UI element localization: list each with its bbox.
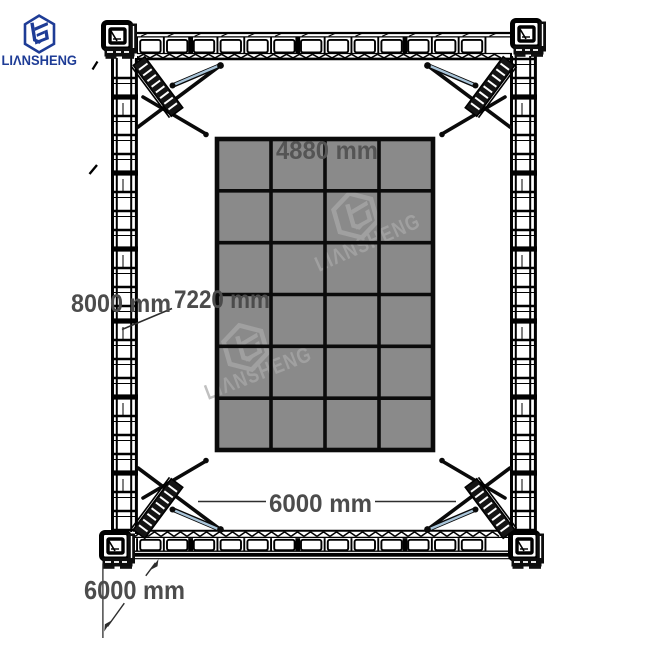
- svg-text:6000 mm: 6000 mm: [84, 575, 185, 605]
- svg-text:LIΛNSHENG: LIΛNSHENG: [2, 53, 78, 68]
- svg-text:6000 mm: 6000 mm: [269, 490, 372, 518]
- svg-text:4880 mm: 4880 mm: [276, 137, 378, 165]
- svg-text:8000 mm: 8000 mm: [71, 290, 171, 318]
- svg-text:7220 mm: 7220 mm: [174, 286, 270, 314]
